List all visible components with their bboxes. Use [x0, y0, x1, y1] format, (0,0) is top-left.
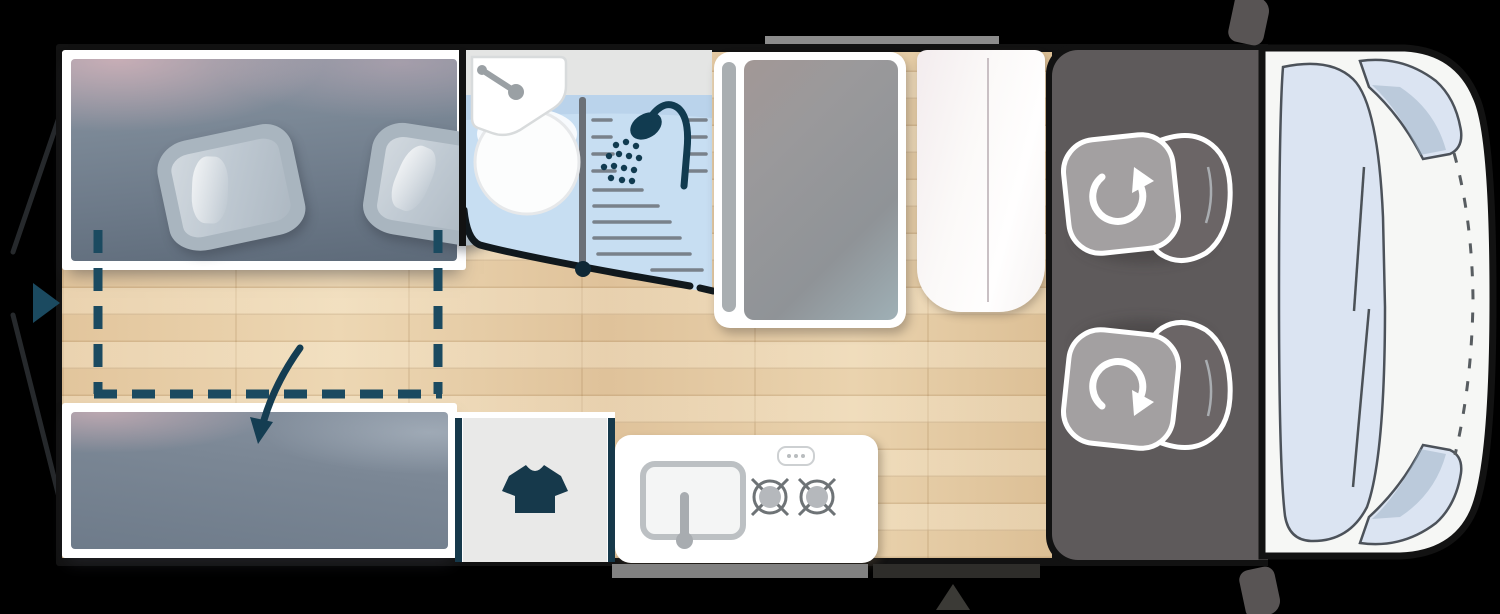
tshirt-icon [500, 460, 570, 518]
closet-wall-right [608, 418, 615, 562]
kitchen-sink [640, 461, 746, 540]
closet-wall-left [455, 418, 462, 562]
van-front [1250, 35, 1500, 580]
wardrobe [917, 50, 1045, 312]
panel-surface [744, 60, 898, 320]
campervan-floorplan [0, 0, 1500, 614]
driver-seat [1058, 115, 1248, 285]
windshield [1279, 64, 1385, 541]
direction-triangle-icon [33, 283, 60, 323]
hob-control-pill [777, 446, 815, 466]
shower-screen [579, 97, 586, 269]
kitchen-faucet-knob [676, 532, 693, 549]
seat-cushion [1060, 327, 1181, 452]
entry-step-outer [612, 564, 868, 578]
passenger-seat [1058, 298, 1248, 468]
seat-cushion [1060, 132, 1181, 257]
panel-hinge-pill [722, 62, 736, 312]
entry-marker-triangle [936, 584, 970, 610]
door-hinge-dot [575, 261, 591, 277]
wardrobe-door-seam [987, 58, 989, 302]
bathroom-wall [459, 50, 466, 246]
bed-extension-zone [88, 224, 468, 454]
bathroom [466, 50, 714, 298]
hob-burners [745, 469, 845, 525]
entry-step-inner [873, 564, 1040, 578]
kitchen-counter [615, 435, 878, 563]
swivel-panel [714, 52, 906, 328]
closet [455, 412, 615, 562]
